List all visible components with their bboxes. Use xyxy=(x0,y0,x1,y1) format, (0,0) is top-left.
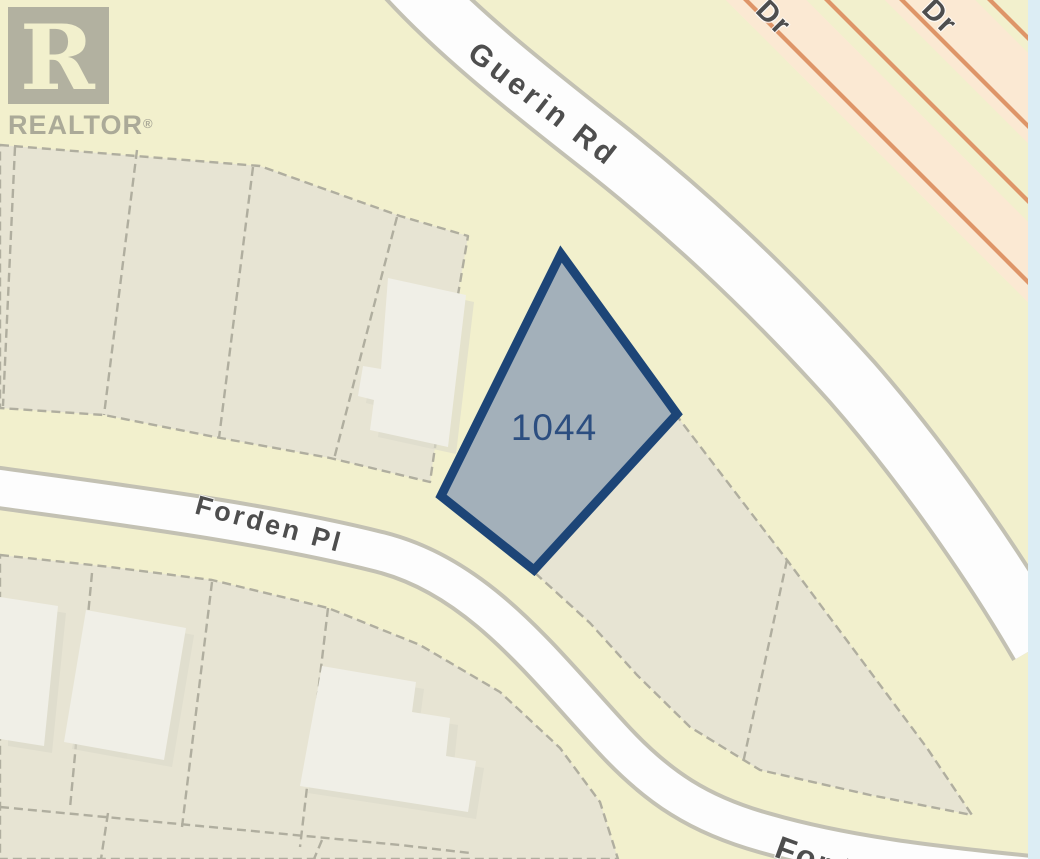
realtor-brand-word: REALTOR xyxy=(8,110,143,140)
registered-mark: ® xyxy=(143,116,154,131)
map-canvas[interactable]: Guerin Rd Forden Pl Ford Dr Dr 1044 R RE… xyxy=(0,0,1040,859)
parcel-1044-label: 1044 xyxy=(506,407,602,449)
realtor-brand-text: REALTOR® xyxy=(8,112,154,139)
realtor-watermark: R REALTOR® xyxy=(8,7,154,139)
realtor-logo-r: R xyxy=(20,7,96,104)
building-footprint xyxy=(64,610,186,760)
water-strip xyxy=(1028,0,1040,859)
realtor-logo-icon: R xyxy=(8,7,109,104)
